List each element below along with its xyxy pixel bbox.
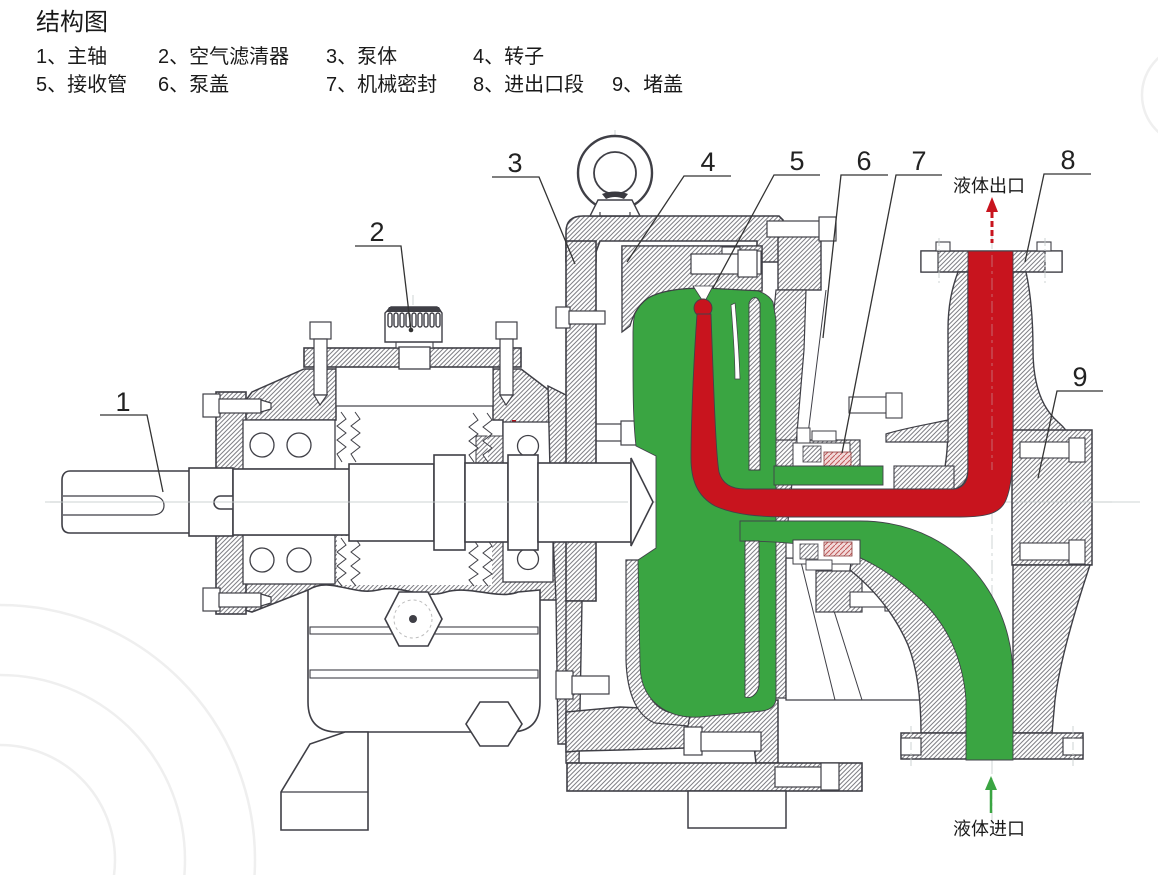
svg-text:9、堵盖: 9、堵盖 [612,73,683,96]
svg-text:6、泵盖: 6、泵盖 [158,73,229,96]
svg-text:8: 8 [1060,145,1075,175]
svg-text:7: 7 [911,146,926,176]
svg-text:2、空气滤清器: 2、空气滤清器 [158,45,289,68]
svg-text:2: 2 [369,217,384,247]
svg-text:5、接收管: 5、接收管 [36,73,127,96]
svg-text:4: 4 [700,147,715,177]
svg-text:7、机械密封: 7、机械密封 [326,73,437,96]
svg-text:3: 3 [507,148,522,178]
svg-text:1、主轴: 1、主轴 [36,45,107,68]
svg-text:1: 1 [115,387,130,417]
svg-text:6: 6 [856,146,871,176]
svg-text:4、转子: 4、转子 [473,45,544,68]
svg-text:5: 5 [789,146,804,176]
svg-text:液体进口: 液体进口 [953,819,1025,839]
svg-text:3、泵体: 3、泵体 [326,45,397,68]
svg-text:8、进出口段: 8、进出口段 [473,73,584,96]
svg-text:液体出口: 液体出口 [953,176,1025,196]
svg-text:结构图: 结构图 [36,9,108,36]
svg-text:9: 9 [1072,362,1087,392]
